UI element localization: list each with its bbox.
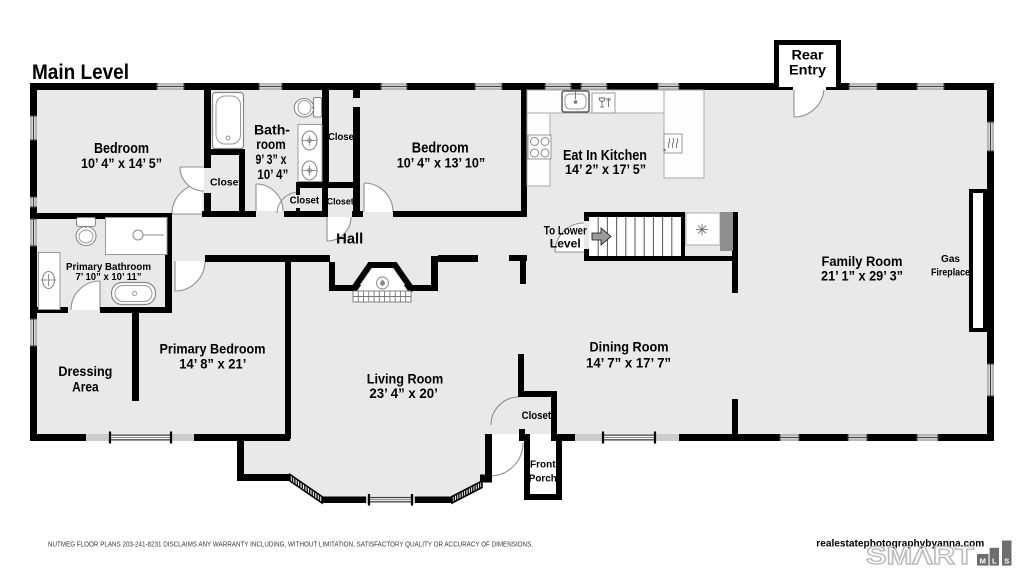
svg-text:23’ 4” x 20’: 23’ 4” x 20’	[369, 386, 438, 401]
svg-text:14’ 2” x 17’ 5”: 14’ 2” x 17’ 5”	[565, 161, 646, 177]
svg-text:Rear: Rear	[792, 48, 825, 63]
svg-text:10’ 4” x 13’ 10”: 10’ 4” x 13’ 10”	[397, 156, 486, 171]
svg-text:Area: Area	[72, 378, 99, 394]
svg-text:Dining Room: Dining Room	[590, 338, 669, 354]
svg-text:Entry: Entry	[789, 63, 827, 78]
svg-text:Main Level: Main Level	[32, 61, 129, 84]
svg-text:Closet: Closet	[328, 131, 357, 143]
svg-text:Level: Level	[550, 239, 581, 251]
svg-text:7’ 10” x 10’ 11”: 7’ 10” x 10’ 11”	[76, 272, 142, 283]
svg-text:Fireplace: Fireplace	[931, 268, 970, 279]
svg-text:21’ 1” x 29’ 3”: 21’ 1” x 29’ 3”	[821, 268, 903, 283]
svg-text:Porch: Porch	[529, 473, 557, 485]
svg-text:Hall: Hall	[336, 232, 363, 248]
svg-text:To Lower: To Lower	[544, 226, 587, 238]
svg-text:14’ 7” x 17’ 7”: 14’ 7” x 17’ 7”	[586, 355, 671, 370]
svg-text:Front: Front	[530, 459, 556, 471]
svg-text:Closet: Closet	[522, 410, 552, 422]
svg-text:Dressing: Dressing	[58, 363, 112, 379]
svg-text:Gas: Gas	[941, 254, 960, 265]
svg-text:NUTMEG FLOOR PLANS 203-241-823: NUTMEG FLOOR PLANS 203-241-8231 DISCLAIM…	[48, 542, 533, 549]
svg-text:Bedroom: Bedroom	[94, 140, 149, 157]
svg-text:Closet: Closet	[210, 176, 242, 188]
svg-text:14’ 8” x 21’: 14’ 8” x 21’	[179, 357, 246, 372]
svg-text:Family Room: Family Room	[822, 254, 903, 269]
svg-text:10’ 4” x 14’ 5”: 10’ 4” x 14’ 5”	[81, 156, 162, 171]
svg-text:Closet: Closet	[290, 196, 320, 207]
svg-text:room: room	[256, 137, 286, 152]
svg-text:10’ 4”: 10’ 4”	[257, 167, 288, 182]
svg-text:Primary Bedroom: Primary Bedroom	[160, 341, 266, 357]
svg-text:S: S	[1004, 557, 1009, 566]
svg-text:9’ 3” x: 9’ 3” x	[256, 152, 287, 167]
svg-text:M: M	[980, 557, 986, 566]
svg-text:Bath-: Bath-	[254, 123, 290, 138]
svg-text:Living Room: Living Room	[367, 370, 444, 386]
svg-text:SMΛRT: SMΛRT	[866, 542, 974, 570]
svg-text:Closet: Closet	[327, 197, 355, 208]
svg-text:Bedroom: Bedroom	[412, 140, 469, 157]
svg-text:L: L	[992, 557, 997, 566]
